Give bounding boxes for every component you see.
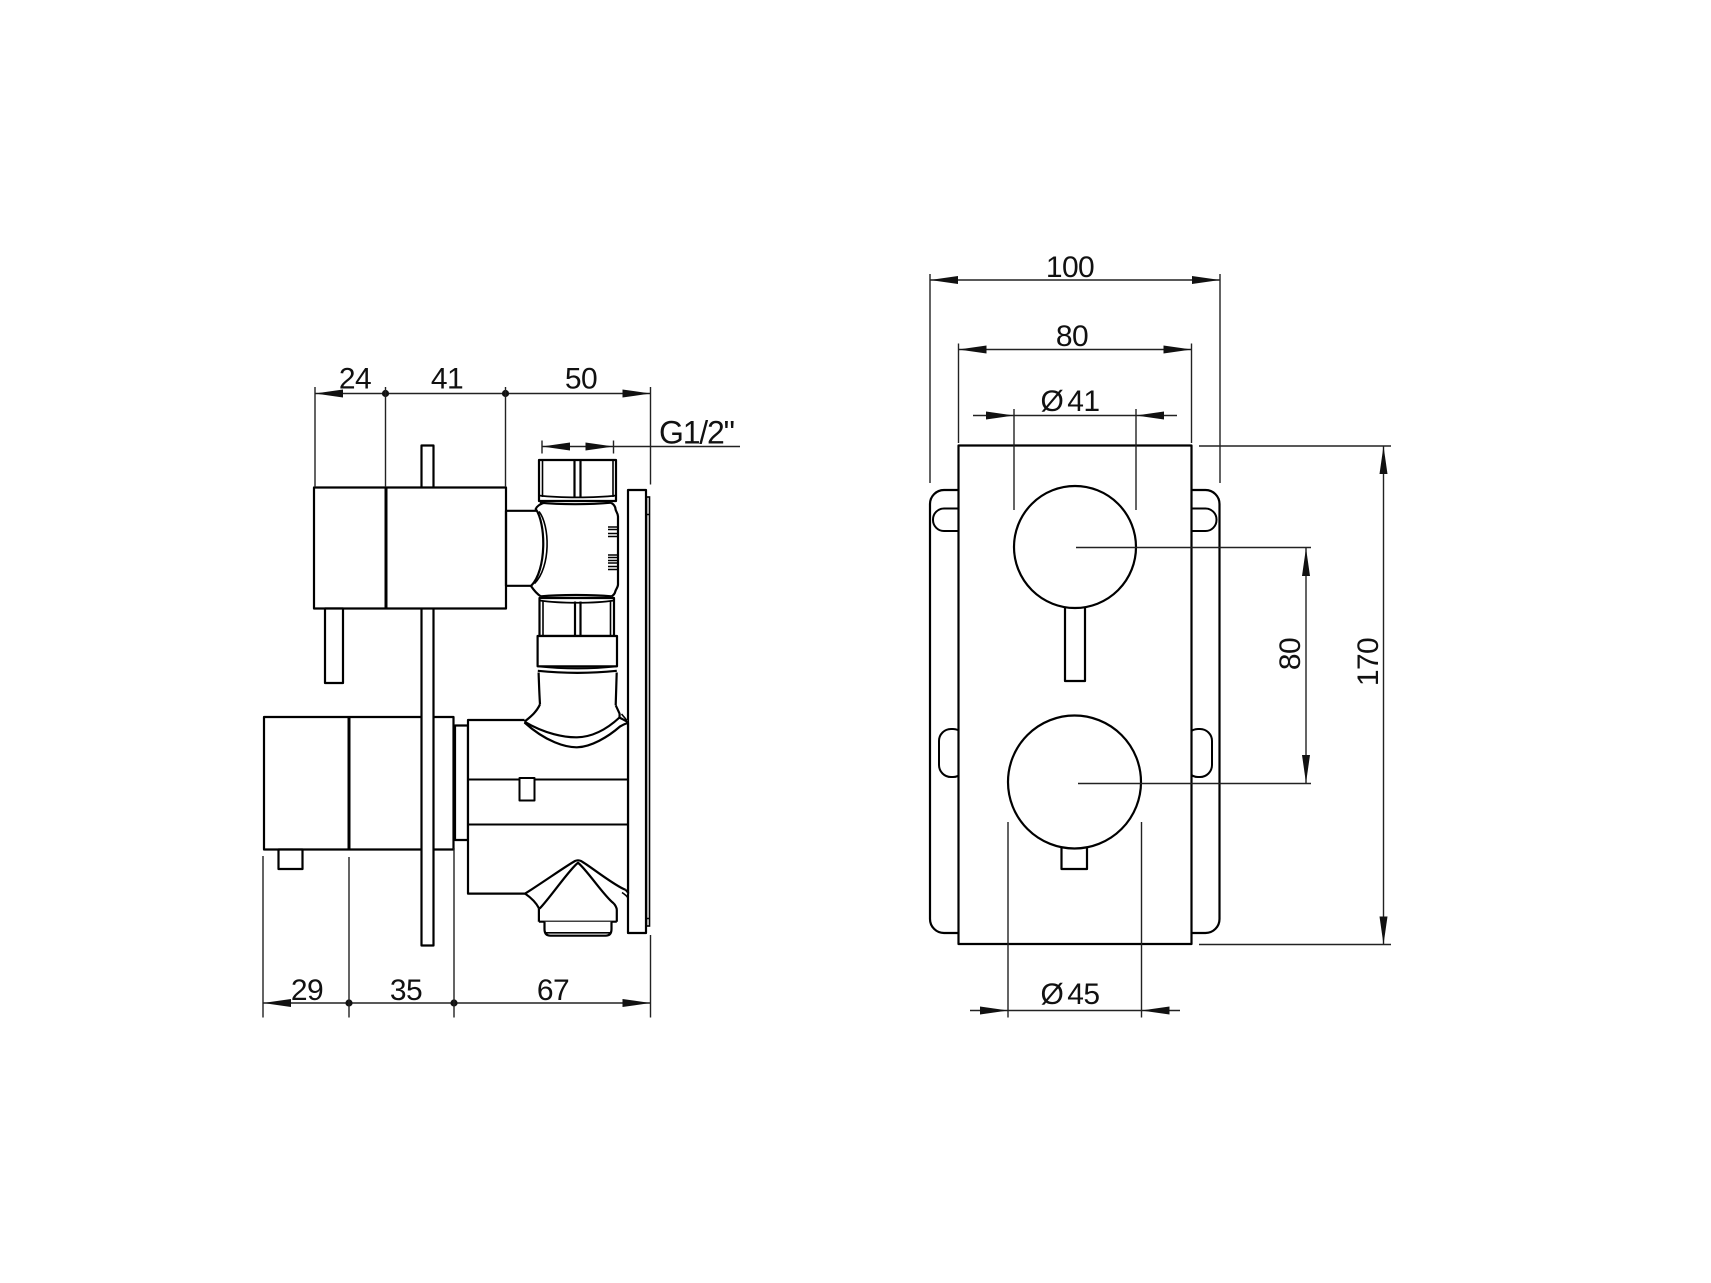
svg-text:Ø41: Ø41 (1041, 385, 1100, 418)
svg-text:80: 80 (1274, 638, 1307, 670)
svg-text:67: 67 (537, 974, 569, 1007)
svg-text:29: 29 (291, 974, 323, 1007)
svg-text:50: 50 (565, 363, 597, 396)
svg-text:100: 100 (1046, 251, 1094, 284)
svg-text:Ø45: Ø45 (1041, 978, 1100, 1011)
svg-text:35: 35 (390, 974, 422, 1007)
svg-text:41: 41 (431, 363, 463, 396)
svg-text:170: 170 (1352, 638, 1385, 686)
svg-text:24: 24 (339, 363, 371, 396)
svg-text:G1/2": G1/2" (659, 415, 734, 451)
svg-text:80: 80 (1056, 320, 1088, 353)
